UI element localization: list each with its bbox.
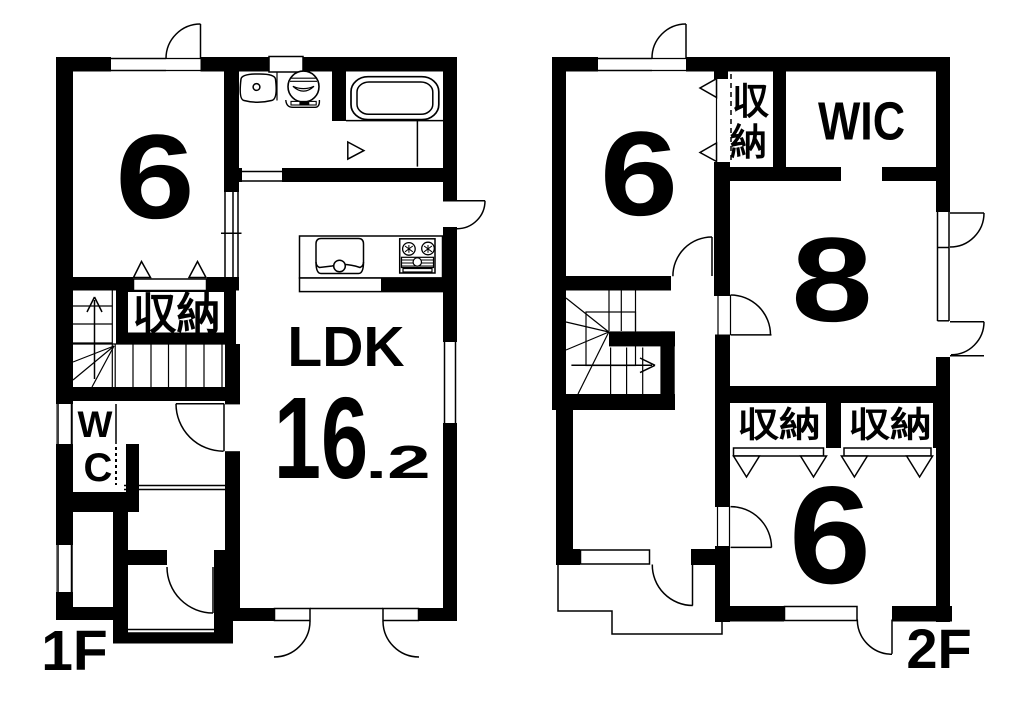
svg-text:16: 16	[274, 373, 368, 503]
svg-text:1F: 1F	[41, 619, 108, 683]
svg-text:収納: 収納	[848, 406, 932, 445]
svg-text:2F: 2F	[906, 617, 971, 680]
svg-text:収納: 収納	[133, 290, 221, 339]
svg-text:6: 6	[600, 107, 678, 241]
svg-text:C: C	[84, 446, 113, 490]
svg-text:LDK: LDK	[287, 315, 404, 379]
svg-text:6: 6	[789, 458, 871, 613]
svg-text:W: W	[78, 404, 113, 445]
svg-text:納: 納	[730, 122, 767, 163]
svg-text:8: 8	[791, 213, 872, 347]
svg-text:収: 収	[732, 81, 769, 122]
svg-text:.2: .2	[365, 436, 430, 488]
svg-text:WIC: WIC	[818, 91, 905, 152]
svg-text:収納: 収納	[737, 406, 821, 445]
svg-text:6: 6	[115, 110, 194, 244]
